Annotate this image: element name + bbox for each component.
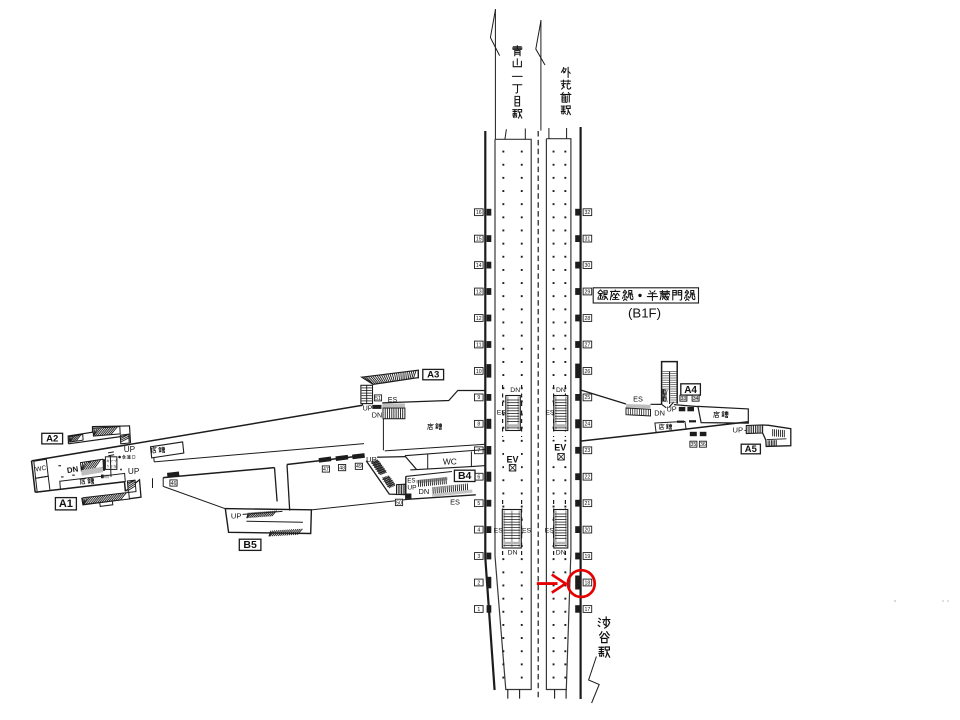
svg-text:15: 15 <box>476 237 482 243</box>
svg-text:B4: B4 <box>458 470 472 482</box>
svg-text:A4: A4 <box>684 385 697 396</box>
svg-text:28: 28 <box>585 316 591 322</box>
svg-text:14: 14 <box>476 263 482 269</box>
svg-text:UP: UP <box>407 485 417 492</box>
svg-text:WC: WC <box>443 456 457 466</box>
svg-text:ES: ES <box>407 477 415 484</box>
svg-text:47: 47 <box>323 467 329 473</box>
svg-text:34: 34 <box>693 396 699 402</box>
svg-text:ES: ES <box>545 410 555 417</box>
svg-text:EV: EV <box>506 455 518 465</box>
svg-text:DN: DN <box>508 550 518 557</box>
svg-text:35: 35 <box>691 442 697 448</box>
svg-text:DN: DN <box>654 408 665 417</box>
svg-text:9: 9 <box>477 395 480 401</box>
svg-text:DN: DN <box>66 464 79 475</box>
svg-text:DN: DN <box>556 387 566 394</box>
svg-text:DN: DN <box>419 487 430 496</box>
svg-text:16: 16 <box>476 210 482 216</box>
svg-text:A3: A3 <box>427 370 439 381</box>
svg-text:18: 18 <box>585 580 591 586</box>
svg-text:5: 5 <box>477 501 480 507</box>
svg-text:DN: DN <box>556 550 566 557</box>
svg-text:29: 29 <box>585 289 591 295</box>
svg-text:WC: WC <box>35 465 47 474</box>
svg-text:17: 17 <box>585 607 591 613</box>
svg-text:ES: ES <box>494 527 504 534</box>
svg-text:12: 12 <box>476 316 482 322</box>
svg-text:ES: ES <box>450 497 460 506</box>
svg-text:UP: UP <box>666 405 676 414</box>
svg-text:A1: A1 <box>59 498 73 510</box>
svg-text:4: 4 <box>477 528 480 534</box>
svg-text:B5: B5 <box>243 539 257 551</box>
svg-text:27: 27 <box>585 342 591 348</box>
svg-text:21: 21 <box>585 501 591 507</box>
svg-text:ES: ES <box>633 395 643 404</box>
svg-text:1: 1 <box>477 607 480 613</box>
svg-text:20: 20 <box>585 528 591 534</box>
svg-text:UP: UP <box>231 512 242 521</box>
svg-text:2: 2 <box>477 580 480 586</box>
svg-text:8: 8 <box>477 422 480 428</box>
svg-text:32: 32 <box>585 210 591 216</box>
svg-text:13: 13 <box>476 289 482 295</box>
svg-text:49: 49 <box>356 464 362 470</box>
svg-text:22: 22 <box>585 475 591 481</box>
svg-text:33: 33 <box>681 396 687 402</box>
svg-text:ES: ES <box>497 410 507 417</box>
svg-text:11: 11 <box>476 342 481 348</box>
svg-text:A2: A2 <box>46 434 58 445</box>
svg-text:23: 23 <box>585 448 591 454</box>
svg-text:10: 10 <box>476 369 482 375</box>
svg-text:UP: UP <box>128 467 140 476</box>
svg-text:31: 31 <box>585 237 591 243</box>
svg-text:36: 36 <box>700 442 706 448</box>
svg-text:UP: UP <box>124 445 136 454</box>
svg-text:DN: DN <box>372 411 382 420</box>
svg-text:6: 6 <box>477 475 480 481</box>
svg-text:EV: EV <box>554 443 566 453</box>
svg-text:(B1F): (B1F) <box>628 306 661 321</box>
svg-text:A5: A5 <box>745 443 757 454</box>
svg-text:50: 50 <box>396 500 402 506</box>
svg-text:19: 19 <box>585 554 591 560</box>
svg-text:30: 30 <box>585 263 591 269</box>
svg-text:24: 24 <box>585 422 591 428</box>
svg-text:3: 3 <box>477 554 480 560</box>
svg-text:ES: ES <box>545 527 555 534</box>
svg-text:26: 26 <box>585 369 591 375</box>
svg-text:ES: ES <box>522 527 532 534</box>
svg-text:25: 25 <box>585 395 591 401</box>
svg-text:DN: DN <box>510 387 520 394</box>
svg-text:UP: UP <box>733 425 744 434</box>
svg-text:7: 7 <box>477 448 480 454</box>
svg-text:48: 48 <box>339 466 345 472</box>
svg-text:51: 51 <box>375 396 381 402</box>
svg-text:46: 46 <box>171 481 177 487</box>
